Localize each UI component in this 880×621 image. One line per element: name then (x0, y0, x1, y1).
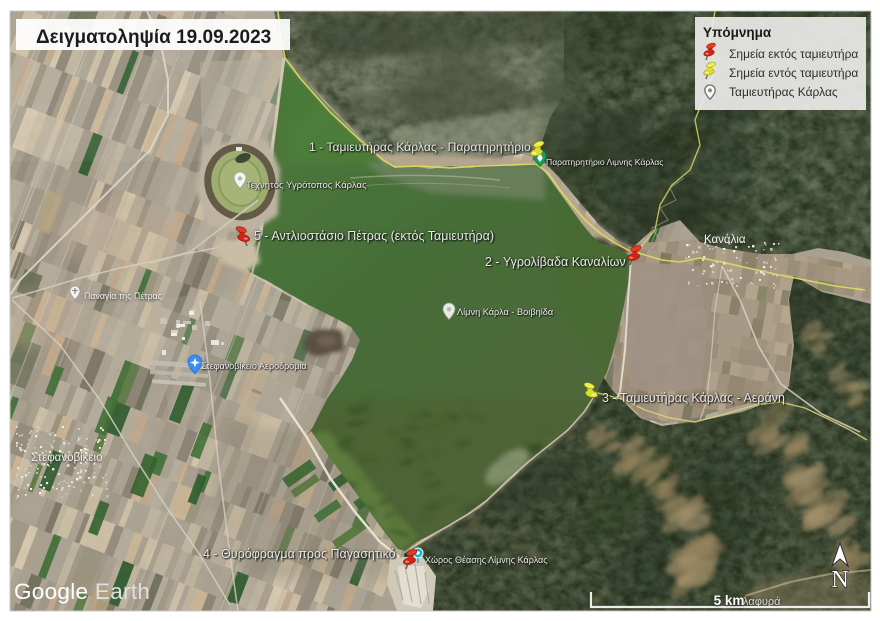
svg-text:3 - Ταμιευτήρας Κάρλας - Αεράν: 3 - Ταμιευτήρας Κάρλας - Αεράνη (602, 391, 785, 405)
svg-text:Ταμιευτήρας Κάρλας: Ταμιευτήρας Κάρλας (729, 85, 838, 99)
svg-text:Λίμνη Κάρλα - Βοιβηίδα: Λίμνη Κάρλα - Βοιβηίδα (457, 307, 554, 317)
svg-text:Στεφανοβίκειο Αεροδρόμια: Στεφανοβίκειο Αεροδρόμια (201, 361, 307, 371)
svg-text:Κανάλια: Κανάλια (704, 234, 746, 246)
svg-text:Σημεία εντός ταμιευτήρα: Σημεία εντός ταμιευτήρα (729, 66, 858, 80)
svg-text:2 - Υγρολίβαδα Καναλίων: 2 - Υγρολίβαδα Καναλίων (485, 255, 626, 269)
svg-text:Στεφανοβίκειο: Στεφανοβίκειο (31, 452, 102, 464)
svg-text:Σημεία εκτός ταμιευτήρα: Σημεία εκτός ταμιευτήρα (729, 47, 858, 61)
svg-text:Δειγματοληψία 19.09.2023: Δειγματοληψία 19.09.2023 (36, 27, 271, 48)
svg-text:Παρατηρητήριο Λιμνης Κάρλας: Παρατηρητήριο Λιμνης Κάρλας (546, 157, 663, 167)
svg-text:Τεχνητός Υγρότοπος Κάρλας: Τεχνητός Υγρότοπος Κάρλας (246, 180, 367, 191)
svg-text:Google Earth: Google Earth (14, 579, 150, 604)
svg-text:Υπόμνημα: Υπόμνημα (703, 25, 772, 40)
svg-text:4 - Θυρόφραγμα προς Παγασητικό: 4 - Θυρόφραγμα προς Παγασητικό (203, 547, 396, 561)
svg-text:Παναγία της Πέτρας: Παναγία της Πέτρας (84, 291, 162, 301)
svg-text:N: N (831, 567, 848, 593)
svg-text:Χώρος Θέασης Λίμνης Κάρλας: Χώρος Θέασης Λίμνης Κάρλας (425, 555, 548, 565)
svg-text:5 km: 5 km (714, 593, 745, 608)
svg-text:5 - Αντλιοστάσιο Πέτρας (εκτός: 5 - Αντλιοστάσιο Πέτρας (εκτός Ταμιευτήρ… (254, 229, 494, 243)
svg-text:1 - Ταμιευτήρας Κάρλας - Παρατ: 1 - Ταμιευτήρας Κάρλας - Παρατηρητήριο (309, 140, 531, 154)
